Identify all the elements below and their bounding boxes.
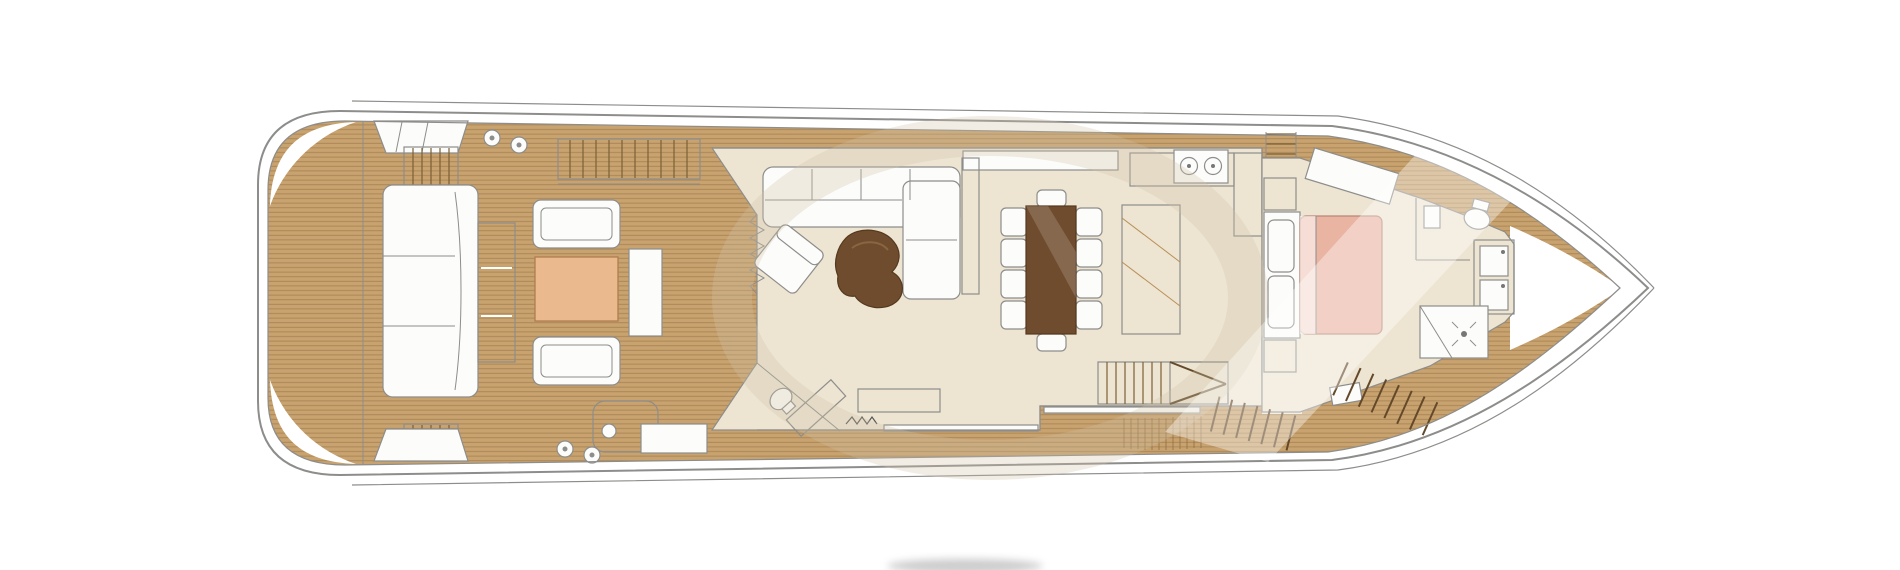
- deck-hatch-top: [374, 121, 468, 153]
- bar-cabinet: [641, 424, 707, 453]
- pillow: [1268, 220, 1294, 272]
- coffee-table: [535, 257, 618, 321]
- dining-area: [1001, 190, 1102, 351]
- dining-chair: [1076, 301, 1102, 329]
- bottom-smudge: [887, 559, 1043, 570]
- faucet-dot: [1501, 250, 1505, 254]
- shower-cabin: [1420, 306, 1488, 358]
- dining-chair: [1001, 270, 1027, 298]
- faucet-dot: [1501, 284, 1505, 288]
- dining-chair: [1037, 190, 1066, 207]
- deck-hatch-bottom: [374, 429, 468, 461]
- aft-sofa: [383, 185, 478, 397]
- dining-chair: [1001, 239, 1027, 267]
- yacht-floor-plan: [0, 0, 1900, 570]
- bar-fitting-icon: [602, 424, 616, 438]
- dining-chair: [1001, 208, 1027, 236]
- cleat-dot: [517, 143, 522, 148]
- dining-chair: [1076, 208, 1102, 236]
- dining-chair: [1001, 301, 1027, 329]
- armchair-bottom: [533, 337, 620, 385]
- dining-chair: [1076, 239, 1102, 267]
- armchair-top: [533, 200, 620, 248]
- drain-dot: [1211, 164, 1215, 168]
- cleat-dot: [563, 447, 568, 452]
- dining-chair: [1037, 334, 1066, 351]
- dining-chair: [1076, 270, 1102, 298]
- cleat-dot: [590, 453, 595, 458]
- screenshot-canvas: [0, 0, 1900, 570]
- shower-head-icon: [1461, 331, 1467, 337]
- side-table: [629, 249, 662, 336]
- cleat-dot: [490, 136, 495, 141]
- drain-dot: [1187, 164, 1191, 168]
